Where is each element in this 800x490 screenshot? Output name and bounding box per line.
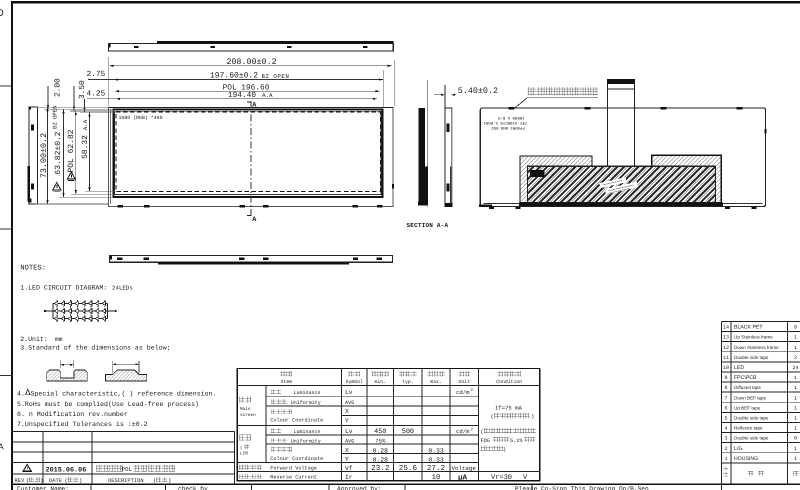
svg-text:Double side tape: Double side tape: [734, 436, 769, 441]
svg-text:): ): [40, 478, 43, 484]
svg-text:Symbol: Symbol: [346, 379, 363, 385]
svg-text:25.6: 25.6: [399, 464, 418, 473]
svg-text:12: 12: [723, 345, 729, 351]
svg-text:X: X: [345, 408, 349, 415]
svg-text:A: A: [0, 442, 4, 452]
svg-text:8: 8: [724, 385, 727, 391]
svg-text:6. n Modification rev.number: 6. n Modification rev.number: [17, 411, 128, 418]
svg-text:Luminance: Luminance: [294, 390, 321, 396]
svg-text:0: 0: [794, 436, 797, 442]
svg-text:X: X: [345, 447, 349, 454]
svg-text:2: 2: [724, 446, 727, 452]
svg-text:Double side tape: Double side tape: [734, 355, 769, 360]
svg-text:Lv: Lv: [345, 428, 353, 435]
svg-text:10: 10: [432, 474, 441, 482]
svg-text:2015.06.06: 2015.06.06: [46, 466, 87, 474]
svg-text:(: (: [481, 429, 484, 435]
svg-text:14: 14: [723, 325, 729, 331]
svg-text:58.32: 58.32: [81, 135, 90, 159]
svg-text:7: 7: [724, 395, 727, 401]
svg-text:): ): [79, 478, 82, 484]
svg-text:Condition: Condition: [496, 379, 522, 385]
svg-text:1: 1: [794, 405, 797, 411]
svg-text:AVG: AVG: [345, 439, 354, 445]
svg-text:Luminance: Luminance: [294, 429, 321, 435]
svg-text:5: 5: [724, 416, 727, 422]
svg-text:): ): [168, 478, 171, 484]
svg-text:check by: check by: [178, 486, 208, 490]
svg-text:Special characteristic,( ) re: Special characteristic,( ) reference dim…: [31, 391, 217, 398]
svg-text:2: 2: [794, 355, 797, 361]
svg-text:1.LED CIRCUIT DIAGRAM:: 1.LED CIRCUIT DIAGRAM:: [20, 284, 107, 291]
svg-text:(: (: [153, 478, 156, 484]
svg-text:1: 1: [794, 345, 797, 351]
svg-text:D: D: [0, 8, 4, 19]
svg-text:208.00±0.2: 208.00±0.2: [226, 57, 276, 67]
svg-text:500: 500: [402, 428, 414, 436]
svg-text:3.50: 3.50: [78, 80, 87, 99]
svg-text:0.33: 0.33: [428, 447, 444, 454]
svg-text:(: (: [26, 478, 29, 484]
svg-text:5.40±0.2: 5.40±0.2: [458, 86, 498, 96]
svg-text:1600 (RGB) *480: 1600 (RGB) *480: [119, 115, 163, 121]
svg-text:μA: μA: [458, 474, 468, 482]
svg-text:POL: POL: [122, 466, 133, 473]
svg-text:1: 1: [794, 335, 797, 341]
svg-text:(: (: [240, 445, 243, 451]
svg-text:Y: Y: [345, 417, 349, 424]
svg-text:1: 1: [794, 456, 797, 462]
svg-text:SECTION A-A: SECTION A-A: [407, 222, 449, 229]
svg-text:mm: mm: [55, 336, 63, 343]
svg-text:450: 450: [374, 428, 386, 436]
svg-text:1: 1: [794, 446, 797, 452]
svg-text:Up BEF tape: Up BEF tape: [734, 405, 761, 410]
svg-text:cd/m: cd/m: [456, 428, 470, 435]
svg-text:10B00 A B-0: 10B00 A B-0: [497, 115, 524, 120]
svg-text:11: 11: [723, 355, 729, 361]
svg-text:Item: Item: [281, 379, 293, 385]
svg-text:5.1%: 5.1%: [510, 438, 523, 444]
svg-text:BZ OPEN: BZ OPEN: [52, 106, 59, 130]
svg-text:typ.: typ.: [402, 379, 414, 385]
svg-text:0.33: 0.33: [428, 457, 444, 464]
svg-text:9: 9: [724, 375, 727, 381]
svg-text:Main: Main: [240, 406, 251, 412]
svg-text:Customer Name:: Customer Name:: [17, 486, 69, 490]
svg-text:FP6BM1-0N0-002: FP6BM1-0N0-002: [491, 125, 525, 130]
svg-text:6: 6: [724, 405, 727, 411]
svg-text:75%: 75%: [375, 437, 386, 444]
svg-text:AVG: AVG: [345, 400, 354, 406]
svg-text:cd/m: cd/m: [456, 389, 470, 396]
svg-text:Unit: Unit: [459, 379, 471, 385]
svg-text:A.A: A.A: [82, 119, 89, 130]
svg-text:1: 1: [794, 385, 797, 391]
svg-text:0.28: 0.28: [373, 457, 389, 464]
svg-text:FOG: FOG: [481, 438, 490, 444]
svg-text:0.28: 0.28: [373, 447, 389, 454]
svg-text:1: 1: [794, 395, 797, 401]
svg-text:(: (: [491, 413, 494, 420]
svg-text:2.00: 2.00: [54, 78, 63, 97]
svg-text:3.Standard of the dimensions a: 3.Standard of the dimensions as below;: [20, 345, 170, 352]
svg-text:4.: 4.: [17, 391, 25, 398]
svg-text:Ir: Ir: [345, 474, 353, 481]
svg-text:63.82±0.2: 63.82±0.2: [54, 131, 63, 174]
svg-text:1: 1: [794, 416, 797, 422]
svg-text:LED: LED: [734, 365, 744, 371]
svg-text:5.RoHs must be complied(Use Le: 5.RoHs must be complied(Use Lead-free pr…: [17, 401, 199, 408]
svg-text:24LEDs: 24LEDs: [112, 284, 133, 291]
svg-text:1: 1: [794, 426, 797, 432]
svg-text:3: 3: [724, 436, 727, 442]
svg-text:13: 13: [723, 335, 729, 341]
svg-text:Down BEF tape: Down BEF tape: [734, 395, 767, 400]
svg-text:7.Unspecified Tolerances is :±: 7.Unspecified Tolerances is :±0.2: [17, 421, 148, 428]
svg-text:DESCRIPTION: DESCRIPTION: [108, 478, 144, 484]
svg-text:REV: REV: [15, 478, 25, 484]
svg-text:SFC-S10BCY0 S-0DN1: SFC-S10BCY0 S-0DN1: [483, 120, 527, 125]
svg-text:24: 24: [792, 365, 798, 371]
svg-text:1: 1: [794, 375, 797, 381]
svg-text:DATE: DATE: [49, 478, 62, 484]
svg-text:max.: max.: [430, 380, 442, 385]
svg-text:23.2: 23.2: [371, 464, 390, 473]
svg-text:L/G: L/G: [734, 446, 742, 452]
svg-text:Colour Coordinate: Colour Coordinate: [270, 456, 323, 462]
svg-text:Reflector tape: Reflector tape: [734, 426, 763, 431]
svg-text:NOTES:: NOTES:: [20, 265, 46, 273]
svg-text:Colour Coordinate: Colour Coordinate: [270, 418, 323, 424]
svg-text:FPC\PCB: FPC\PCB: [734, 375, 757, 381]
svg-text:BZ OPEN: BZ OPEN: [262, 73, 290, 80]
svg-text:Down Stainless frame: Down Stainless frame: [734, 345, 779, 350]
svg-text:2.75: 2.75: [87, 70, 106, 79]
svg-text:min.: min.: [375, 379, 387, 385]
svg-text:1: 1: [724, 456, 727, 462]
svg-text:0: 0: [794, 325, 797, 331]
svg-text:4: 4: [724, 426, 727, 432]
svg-text:Forward Voltage: Forward Voltage: [270, 465, 317, 471]
svg-text:Up Stainless frame: Up Stainless frame: [734, 335, 773, 340]
svg-text:Y: Y: [345, 456, 349, 463]
svg-text:Voltage: Voltage: [452, 465, 477, 472]
svg-text:27.2: 27.2: [427, 464, 446, 473]
svg-text:HOUSING: HOUSING: [734, 456, 758, 462]
svg-text:): ): [503, 447, 506, 453]
svg-text:Uniformity: Uniformity: [291, 400, 321, 406]
svg-text:screen: screen: [240, 413, 256, 418]
svg-text:10: 10: [723, 365, 729, 371]
svg-text:POL 62.82: POL 62.82: [67, 129, 76, 172]
svg-text:Diffused tape: Diffused tape: [734, 385, 761, 390]
svg-text:4.25: 4.25: [87, 89, 106, 98]
svg-text:Vr=30: Vr=30: [491, 474, 512, 482]
svg-text:(: (: [65, 478, 68, 484]
svg-text:A.A: A.A: [262, 92, 273, 99]
svg-text:If=75 mA: If=75 mA: [495, 404, 522, 411]
svg-text:Reverse Current: Reverse Current: [270, 475, 317, 481]
svg-text:Uniformity: Uniformity: [291, 439, 321, 445]
svg-text:Please Co-Sign This Drawing On: Please Co-Sign This Drawing On/B.Sen: [515, 486, 649, 490]
svg-text:Double side tape: Double side tape: [734, 416, 769, 421]
svg-text:): ): [531, 413, 534, 420]
svg-text:LCM: LCM: [240, 452, 248, 457]
svg-text:2.Unit:: 2.Unit:: [20, 336, 48, 343]
svg-text:BLACK PET: BLACK PET: [734, 325, 763, 331]
svg-text:Approved by:: Approved by:: [337, 486, 382, 490]
svg-text:Lv: Lv: [345, 389, 353, 396]
svg-text:Vf: Vf: [345, 465, 353, 472]
